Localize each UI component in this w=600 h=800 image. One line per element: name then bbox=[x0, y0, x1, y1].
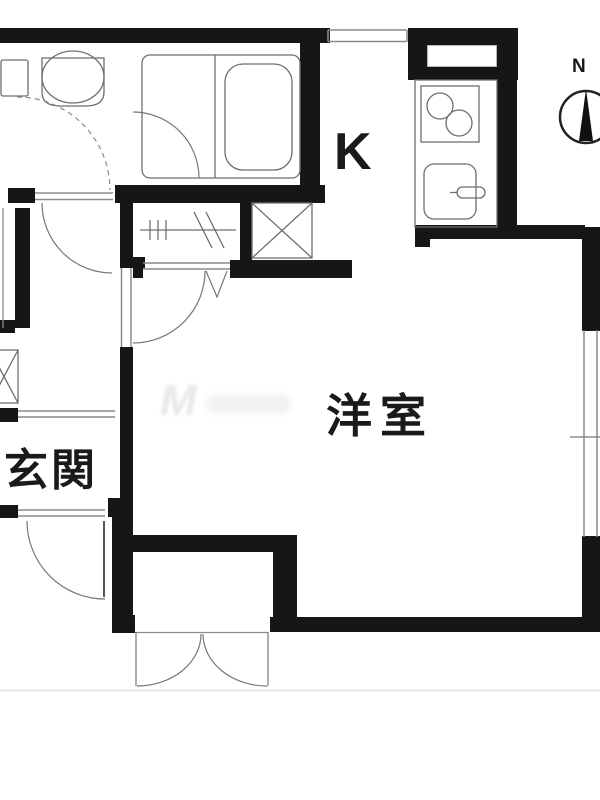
kitchen-label: K bbox=[334, 122, 372, 182]
watermark: M bbox=[160, 376, 197, 426]
hall-room-door-swing bbox=[133, 271, 205, 343]
window-top-icon bbox=[328, 30, 407, 42]
floor-plan: K 洋室 玄関 N M bbox=[0, 0, 600, 800]
entrance-door-swing bbox=[27, 521, 105, 599]
bath-unit-icon bbox=[142, 55, 300, 178]
bifold-door-icon bbox=[206, 271, 227, 297]
compass-needle-icon bbox=[579, 89, 593, 141]
entrance-doorway-opening bbox=[18, 510, 105, 516]
sink-icon bbox=[424, 164, 476, 219]
crossed-box-icon bbox=[252, 203, 312, 258]
crossed-box-left-icon bbox=[0, 350, 18, 403]
toilet-door-swing-dashed bbox=[17, 97, 110, 190]
hanger-rack-icon bbox=[140, 212, 236, 248]
kitchen-counter-icon bbox=[415, 80, 497, 227]
double-swing-door-icon bbox=[135, 632, 268, 686]
faucet-icon bbox=[457, 187, 485, 198]
compass-icon bbox=[560, 89, 600, 143]
entrance-label: 玄関 bbox=[4, 434, 98, 498]
toilet-doorway-opening bbox=[35, 193, 113, 200]
burner-icon bbox=[446, 110, 472, 136]
hall-room-opening bbox=[122, 268, 132, 347]
watermark-blur bbox=[206, 394, 291, 414]
bath-door-swing bbox=[133, 112, 199, 178]
entrance-step-opening bbox=[18, 411, 115, 417]
closet-opening bbox=[143, 263, 230, 269]
compass-north-label: N bbox=[572, 56, 586, 78]
western-room-label: 洋室 bbox=[326, 380, 434, 446]
toilet-door-swing bbox=[42, 203, 112, 273]
image-bottom-edge bbox=[0, 689, 600, 692]
toilet-icon bbox=[1, 51, 104, 106]
window-right-icon bbox=[570, 330, 600, 537]
fixture-lines bbox=[0, 0, 600, 800]
bathtub-icon bbox=[225, 64, 292, 170]
